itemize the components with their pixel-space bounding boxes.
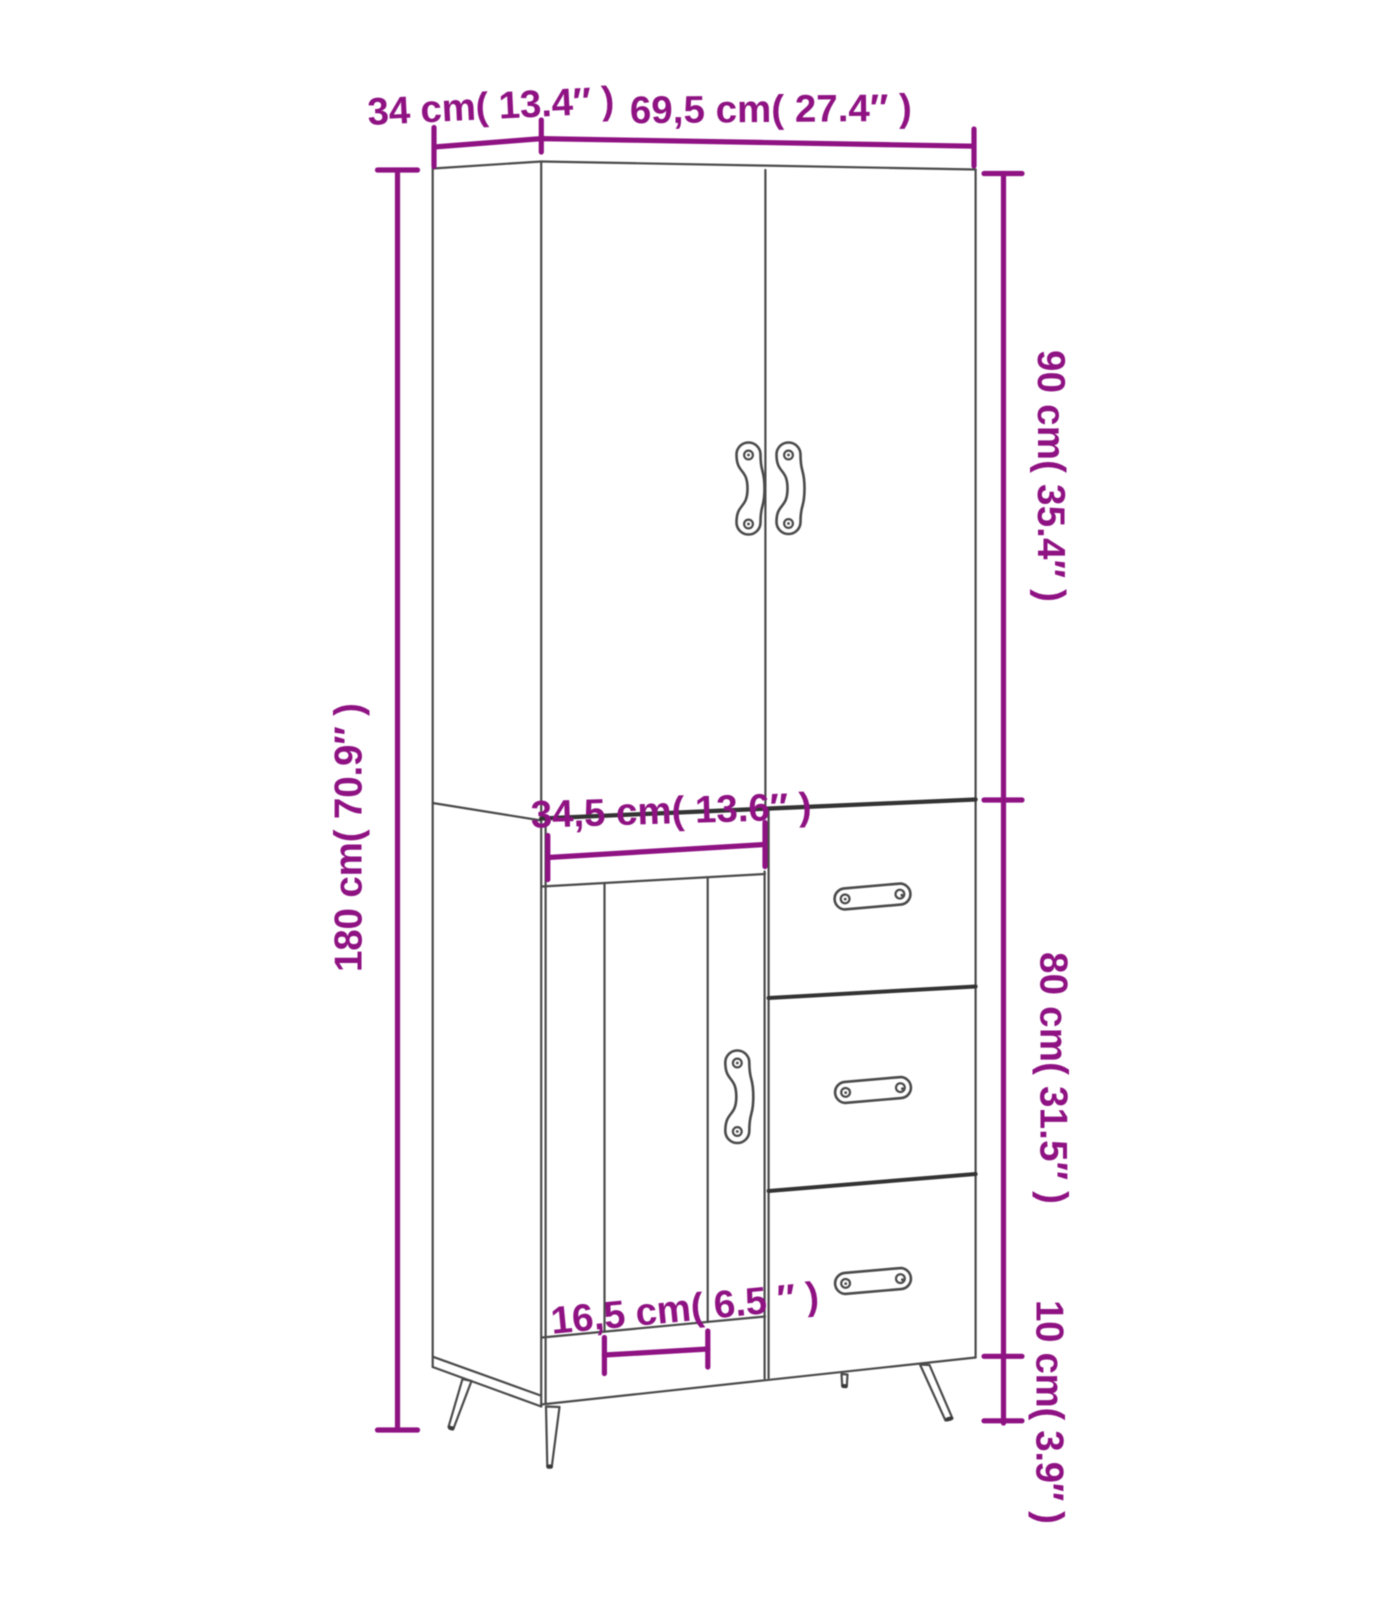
svg-text:80 cm( 31.5″ ): 80 cm( 31.5″ ) [1032,952,1075,1204]
svg-text:34,5 cm( 13.6″ ): 34,5 cm( 13.6″ ) [530,785,812,837]
svg-text:90 cm( 35.4″ ): 90 cm( 35.4″ ) [1029,350,1072,602]
svg-text:10 cm( 3.9″ ): 10 cm( 3.9″ ) [1028,1300,1071,1524]
svg-text:180 cm( 70.9″ ): 180 cm( 70.9″ ) [328,703,371,972]
svg-text:69,5 cm( 27.4″ ): 69,5 cm( 27.4″ ) [630,87,912,132]
